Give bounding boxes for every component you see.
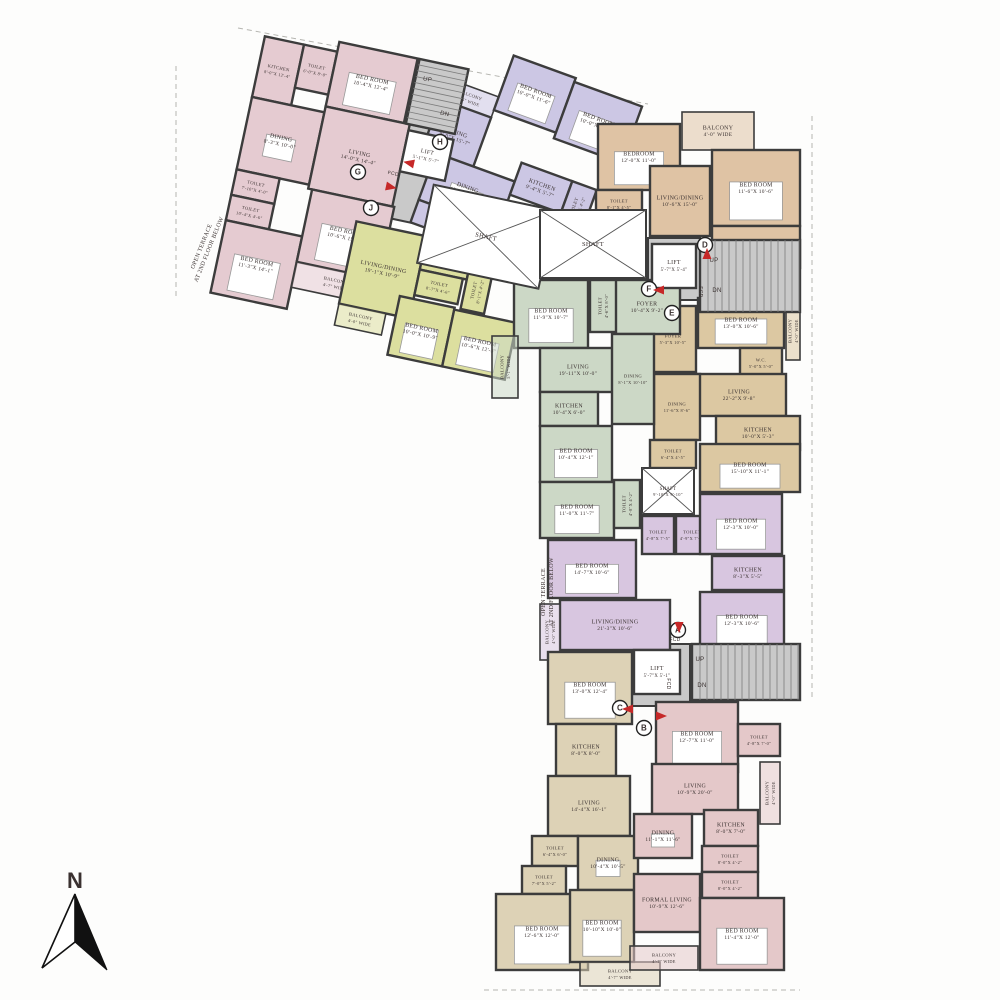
room-toilet [702,846,758,872]
svg-text:E: E [669,309,675,318]
lift-label: LIFT [650,666,664,672]
room-toilet [738,724,780,756]
room-label: TOILET [622,495,627,513]
room-dims: 5'-3"X 10'-5" [660,340,687,345]
room-dims: 10'-9"X 12'-6" [649,904,685,910]
room-dims: 4'-8"X 7'-5" [646,536,670,541]
room-dims: 12'-6"X 12'-0" [524,933,560,939]
fcd-label: FCD [669,637,680,643]
lift: LIFT5'-7"X 5'-1" [634,650,680,694]
room-label: KITCHEN [572,745,600,751]
unit-marker-D: D [698,238,713,253]
svg-text:C: C [617,704,623,713]
svg-text:SHAFT: SHAFT [582,241,604,248]
room-dims: 22'-2"X 9'-8" [723,396,756,402]
svg-text:H: H [437,138,443,147]
room-dims: 10'-9"X 20'-0" [677,790,713,796]
room-toilet [650,440,696,468]
unit-marker-G: G [351,165,366,180]
room-dims: 8'-0"X 4'-2" [718,886,742,891]
staircase [692,644,800,700]
svg-text:B: B [641,724,647,733]
room-label: BALCONY [765,780,770,805]
room-dims: 4'-6"X 8'-0" [604,294,609,318]
room-label: BED ROOM [575,564,609,570]
unit-marker-F: F [642,282,657,297]
room-toilet [532,836,578,866]
room-dims: 13'-0"X 10'-6" [723,324,759,330]
room-dims: 12'-3"X 10'-6" [724,621,760,627]
unit-marker-B: B [637,721,652,736]
room-label: LIVING [567,365,590,371]
room-label: LIVING/DINING [592,620,639,626]
unit-marker-H: H [433,135,448,150]
room-label: BED ROOM [525,927,559,933]
unit-marker-E: E [665,306,680,321]
room-label: BALCONY [652,953,677,958]
room-label: BED ROOM [739,183,773,189]
room-dims: 15'-10"X 11'-1" [731,469,769,475]
room-label: TOILET [535,875,553,880]
svg-text:UP: UP [696,657,705,663]
room-label: TOILET [750,735,768,740]
room-label: LIVING [684,784,707,790]
room-dims: 4'-0" WIDE [771,781,776,805]
room-dims: 11'-0"X 11'-7" [559,511,594,517]
room-dims: 11'-9"X 10'-7" [533,315,568,321]
room-label: DINING [668,402,687,407]
room-dims: 8'-0"X 8'-0" [571,751,601,757]
room-dims: 4'-0" WIDE [794,319,799,343]
room-balcony [492,336,518,398]
room-label: TOILET [546,846,564,851]
svg-text:9'-10"X 9'-10": 9'-10"X 9'-10" [653,492,683,497]
room-label: LIVING [578,801,601,807]
room-dims: 5'-0"X 5'-0" [749,364,773,369]
room-dims: 11'-1"X 11'-6" [645,837,680,843]
lift-dims: 5'-7"X 5'-4" [661,268,688,273]
room-label: TOILET [664,449,682,454]
room-dims: 10'-0"X 5'-3" [742,434,775,440]
room-dims: 11'-6"X 10'-6" [738,189,773,195]
fcd-label: FCD [697,286,703,297]
room-dims: 4'-7" WIDE [608,975,632,980]
room-label: BED ROOM [680,732,714,738]
floor-plan-svg: KITCHEN8'-0"X 12'-4"TOILET6'-0"X 8'-0"BE… [0,0,1000,1000]
room-dims: 19'-11"X 10'-0" [559,371,597,377]
room-label: DINING [624,374,643,379]
room-dims: 4'-8"X 7'-0" [747,741,771,746]
room-label: DINING [597,858,620,864]
room-dims: 10'-6"X 15'-0" [662,202,698,208]
room-label: FORMAL LIVING [642,898,692,904]
room-dims: 13'-0"X 12'-4" [572,689,608,695]
room-label: LIVING/DINING [657,196,704,202]
room-balcony [760,762,780,824]
room-dims: 5'-1" WIDE [506,355,511,379]
lift-label: LIFT [667,260,681,266]
room-dims: 14'-7"X 10'-6" [574,570,610,576]
room-dims: 6'-4"X 6'-0" [543,852,567,857]
room-dims: 11'-6"X 8'-6" [664,408,691,413]
room-label: BALCONY [608,969,633,974]
north-label: N [67,868,83,893]
room-dims: 8'-3"X 5'-5" [733,574,763,580]
room-dims: 8'-1"X 10'-10" [618,380,647,385]
room-toilet [614,480,640,528]
room-dims: 4'-7" WIDE [652,959,676,964]
room-dims: 12'-3"X 10'-0" [723,525,759,531]
room-label: BED ROOM [725,615,759,621]
room-label: BALCONY [703,126,734,132]
room-dims: 10'-4"X 9'-2" [631,308,664,314]
room-dims: 10'-4"X 10'-5" [590,864,626,870]
room-dims: 11'-4"X 12'-0" [724,935,759,941]
staircase [700,240,800,312]
svg-text:AT 2ND FLOOR BELOW: AT 2ND FLOOR BELOW [549,557,555,627]
room-dims: 10'-4"X 12'-1" [558,455,594,461]
room-toilet [702,872,758,898]
room-label: TOILET [683,530,701,535]
room-label: BED ROOM [573,683,607,689]
room-label: BED ROOM [585,921,619,927]
room-label: LIVING [728,390,751,396]
room-dims: 21'-3"X 10'-6" [597,626,633,632]
room-dims: 6'-4"X 4'-5" [661,455,685,460]
room-label: BED ROOM [559,449,593,455]
room-label: KITCHEN [555,404,583,410]
svg-text:D: D [702,241,708,250]
room-balcony [630,946,698,970]
room-label: W.C. [756,358,766,363]
shaft: SHAFT9'-10"X 9'-10" [642,468,694,514]
room-dims: 12'-0"X 11'-0" [621,158,656,164]
shaft: SHAFT [540,210,646,278]
room-dims: 4'-8"X 4'-2" [628,492,633,516]
fcd-label: FCD [665,678,671,689]
room-toilet [642,516,674,554]
room-dims: 12'-7"X 11'-0" [679,738,714,744]
room-label: KITCHEN [734,568,762,574]
svg-text:DN: DN [697,683,706,689]
room-label: TOILET [598,297,603,315]
room-label: TOILET [721,880,739,885]
room-label: BED ROOM [560,505,594,511]
svg-text:G: G [355,168,362,177]
unit-marker-J: J [364,201,379,216]
room-dims: 10'-4"X 6'-0" [553,410,586,416]
room-dims: 10'-10"X 10'-0" [583,927,622,933]
room-dining [612,334,654,424]
room-dims: 4'-0" WIDE [704,132,733,138]
floor-plan-canvas: KITCHEN8'-0"X 12'-4"TOILET6'-0"X 8'-0"BE… [0,0,1000,1000]
room-label: BED ROOM [724,318,758,324]
svg-text:DN: DN [712,288,721,294]
room-label: BALCONY [500,354,505,379]
room-dining [654,374,700,440]
room-dims: 8'-0"X 7'-0" [716,829,746,835]
svg-text:OPEN TERRACE: OPEN TERRACE [541,568,547,616]
room-toilet [522,866,566,894]
room-label: TOILET [721,854,739,859]
svg-text:F: F [646,285,651,294]
room-label: BED ROOM [724,519,758,525]
room-dims: 8'-0"X 4'-2" [718,860,742,865]
room-label: KITCHEN [717,823,745,829]
room-dims: 7'-0"X 5'-2" [532,881,556,886]
room-label: KITCHEN [744,428,772,434]
north-arrow: N [42,868,107,970]
room-label: BED ROOM [725,929,759,935]
room-label: DINING [652,831,675,837]
room-label: TOILET [649,530,667,535]
lift: LIFT5'-7"X 5'-4" [652,244,696,288]
room-label: FOYER [637,302,658,308]
room-label: BEDROOM [623,152,655,158]
room-kitchen [252,36,304,105]
room-label: BED ROOM [733,463,767,469]
room-toilet [590,280,616,332]
room-label: BED ROOM [534,309,568,315]
room-dims: 14'-4"X 16'-1" [571,807,607,813]
unit-B: BED ROOM12'-7"X 11'-0"TOILET4'-8"X 7'-0"… [630,702,784,970]
room-label: BALCONY [788,318,793,343]
svg-text:J: J [369,204,374,213]
room-label: TOILET [610,199,628,204]
